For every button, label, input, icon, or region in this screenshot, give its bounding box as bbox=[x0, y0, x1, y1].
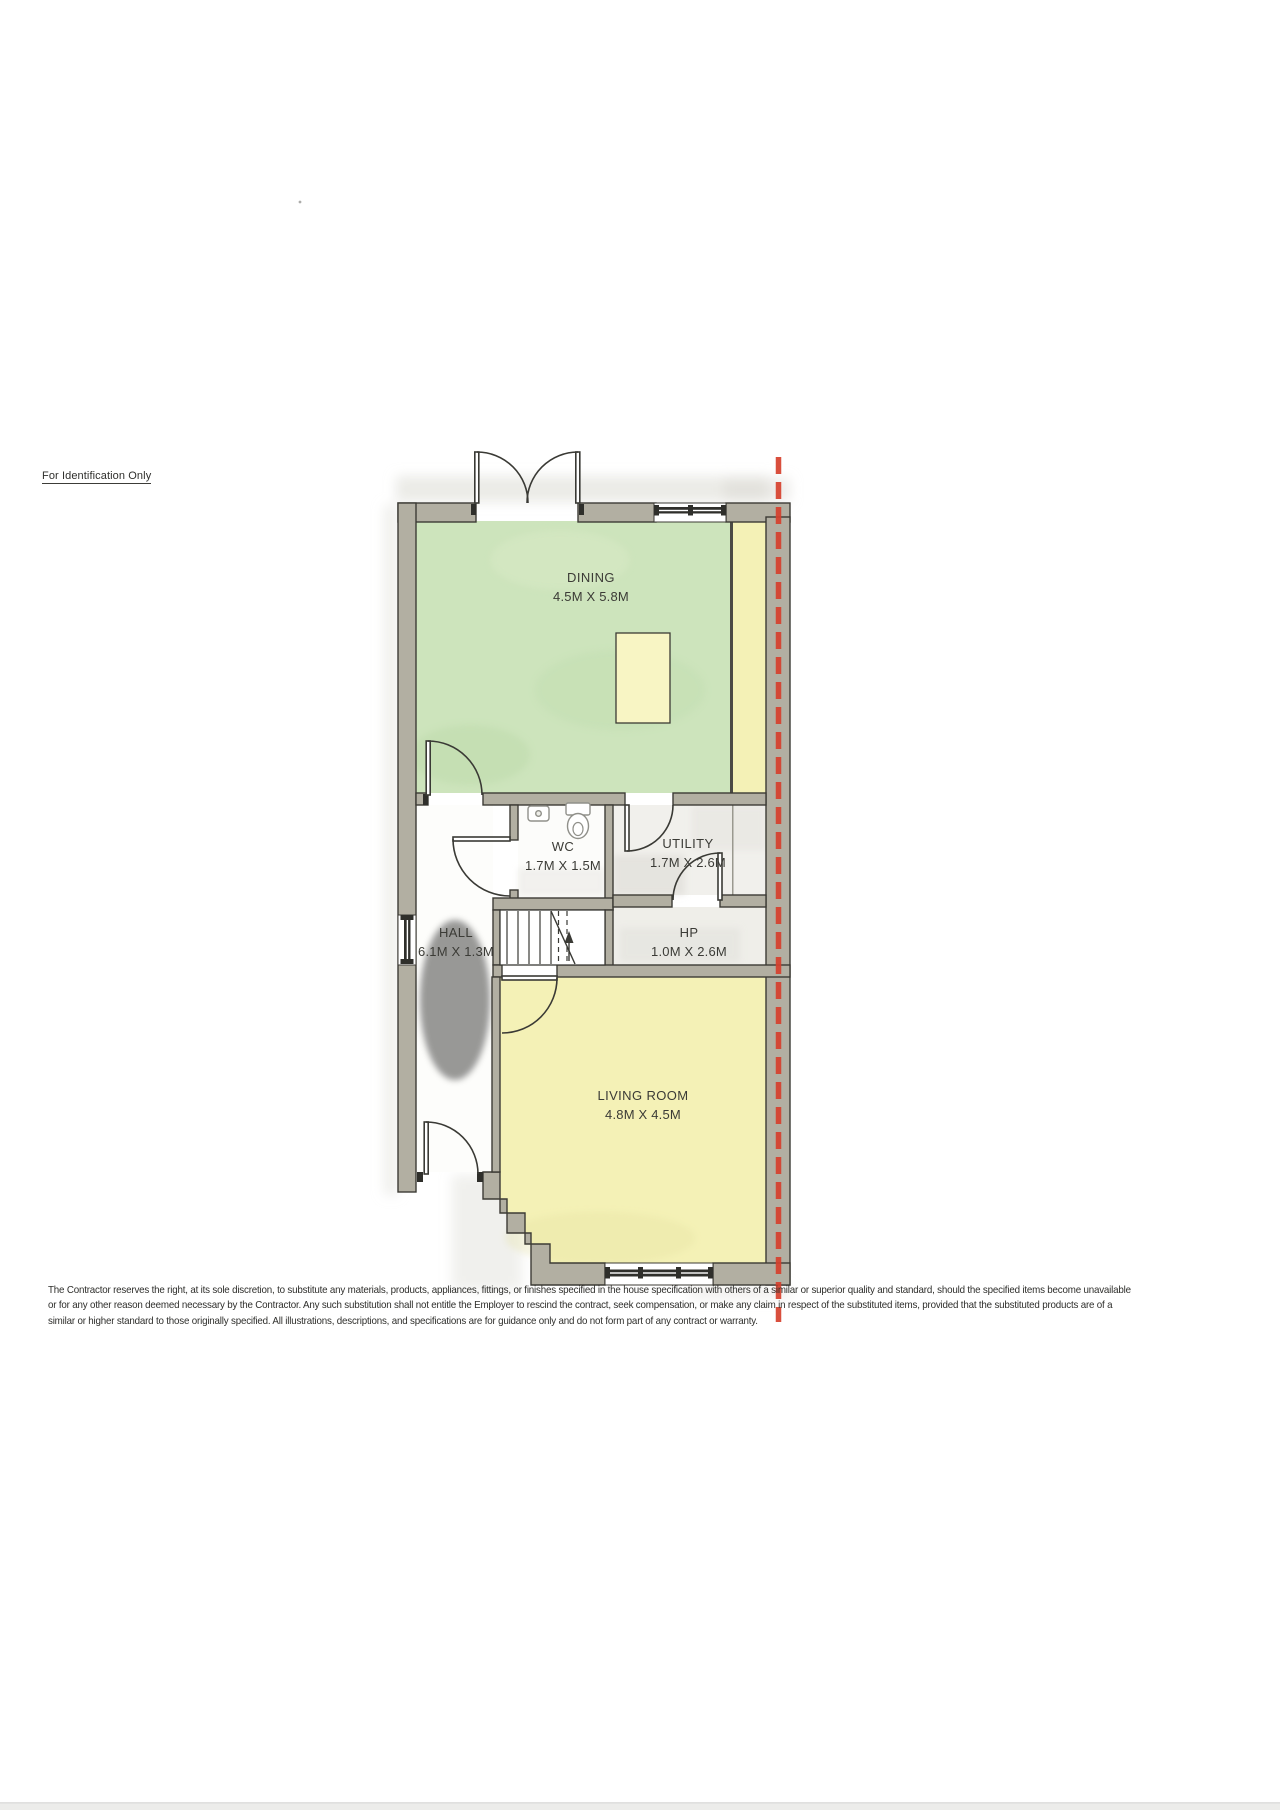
disclaimer-line: The Contractor reserves the right, at it… bbox=[48, 1283, 1131, 1298]
dining-table bbox=[616, 633, 670, 723]
room-label-dining: DINING 4.5M X 5.8M bbox=[553, 569, 629, 606]
room-name: HP bbox=[651, 924, 727, 943]
room-label-living-room: LIVING ROOM 4.8M X 4.5M bbox=[597, 1087, 688, 1124]
room-name: UTILITY bbox=[650, 835, 726, 854]
scanned-page: For Identification Only bbox=[0, 0, 1280, 1810]
room-label-utility: UTILITY 1.7M X 2.6M bbox=[650, 835, 726, 872]
contractor-disclaimer: The Contractor reserves the right, at it… bbox=[48, 1283, 1188, 1329]
room-dims: 1.7M X 2.6M bbox=[650, 854, 726, 873]
disclaimer-line: similar or higher standard to those orig… bbox=[48, 1314, 1131, 1329]
hp-left-wall bbox=[605, 910, 613, 973]
wc-stairs-wall bbox=[493, 898, 613, 910]
living-left-wall bbox=[492, 977, 500, 1172]
sink-icon bbox=[528, 806, 549, 821]
scan-speck bbox=[299, 201, 302, 204]
room-label-hall: HALL 6.1M X 1.3M bbox=[418, 924, 494, 961]
room-dims: 4.5M X 5.8M bbox=[553, 588, 629, 607]
wc-right-wall bbox=[605, 805, 613, 910]
stairs bbox=[500, 910, 605, 965]
dining-right-partition-line bbox=[730, 521, 733, 793]
window-top bbox=[654, 503, 726, 522]
room-label-wc: WC 1.7M X 1.5M bbox=[525, 838, 601, 875]
top-wall-mid bbox=[578, 503, 656, 522]
room-name: HALL bbox=[418, 924, 494, 943]
side-strip-floor bbox=[733, 521, 766, 793]
living-top-wall-stub bbox=[493, 965, 502, 977]
toilet-icon bbox=[566, 803, 590, 839]
stairs-left-wall bbox=[493, 910, 500, 965]
dining-wc-wall bbox=[483, 793, 625, 805]
floor-plan-drawing bbox=[0, 0, 1280, 1810]
utility-hp-wall-right bbox=[720, 895, 766, 907]
living-top-wall bbox=[557, 965, 790, 977]
room-name: WC bbox=[525, 838, 601, 857]
utility-hp-wall-left bbox=[613, 895, 672, 907]
window-left bbox=[398, 915, 416, 965]
room-label-hp: HP 1.0M X 2.6M bbox=[651, 924, 727, 961]
paper-bottom-edge bbox=[0, 1802, 1280, 1810]
left-wall bbox=[398, 503, 416, 1192]
room-name: DINING bbox=[553, 569, 629, 588]
room-dims: 1.0M X 2.6M bbox=[651, 943, 727, 962]
room-name: LIVING ROOM bbox=[597, 1087, 688, 1106]
room-dims: 4.8M X 4.5M bbox=[597, 1106, 688, 1125]
wc-left-wall-upper bbox=[510, 805, 518, 840]
utility-partition-line bbox=[732, 805, 734, 895]
disclaimer-line: or for any other reason deemed necessary… bbox=[48, 1298, 1131, 1313]
room-dims: 1.7M X 1.5M bbox=[525, 857, 601, 876]
room-dims: 6.1M X 1.3M bbox=[418, 943, 494, 962]
room-floors bbox=[410, 521, 766, 1264]
window-bottom bbox=[605, 1263, 713, 1285]
dining-utility-wall bbox=[673, 793, 766, 805]
